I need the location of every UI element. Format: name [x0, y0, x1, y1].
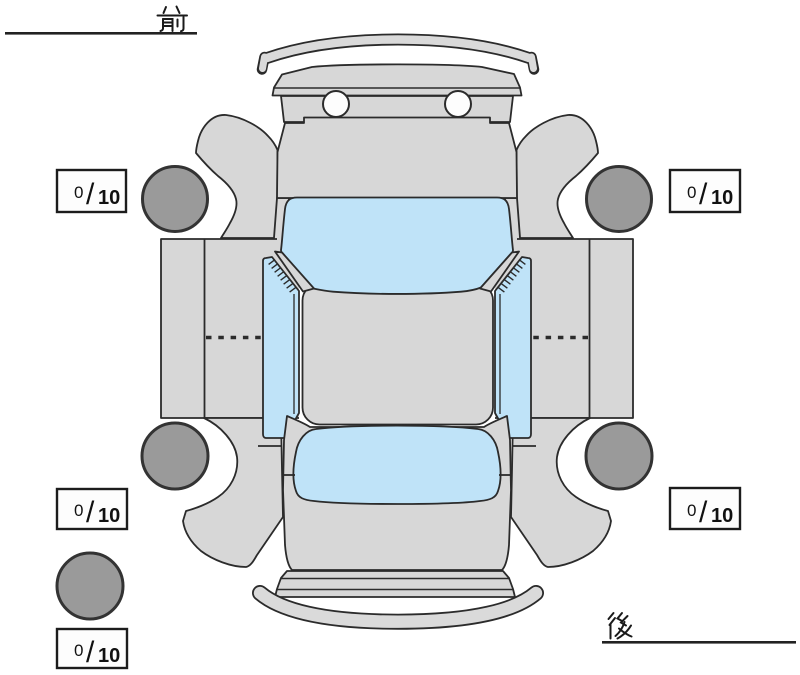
svg-text:10: 10	[711, 187, 733, 209]
svg-text:/: /	[86, 178, 95, 211]
svg-text:/: /	[86, 636, 95, 669]
svg-text:0: 0	[74, 183, 83, 202]
svg-text:0: 0	[74, 641, 83, 660]
svg-text:/: /	[699, 496, 708, 529]
svg-text:0: 0	[687, 183, 696, 202]
svg-text:/: /	[699, 178, 708, 211]
svg-text:0: 0	[687, 501, 696, 520]
svg-text:10: 10	[98, 187, 120, 209]
svg-text:10: 10	[98, 505, 120, 527]
svg-text:/: /	[86, 496, 95, 529]
svg-text:0: 0	[74, 501, 83, 520]
svg-text:10: 10	[711, 505, 733, 527]
svg-text:10: 10	[98, 645, 120, 667]
